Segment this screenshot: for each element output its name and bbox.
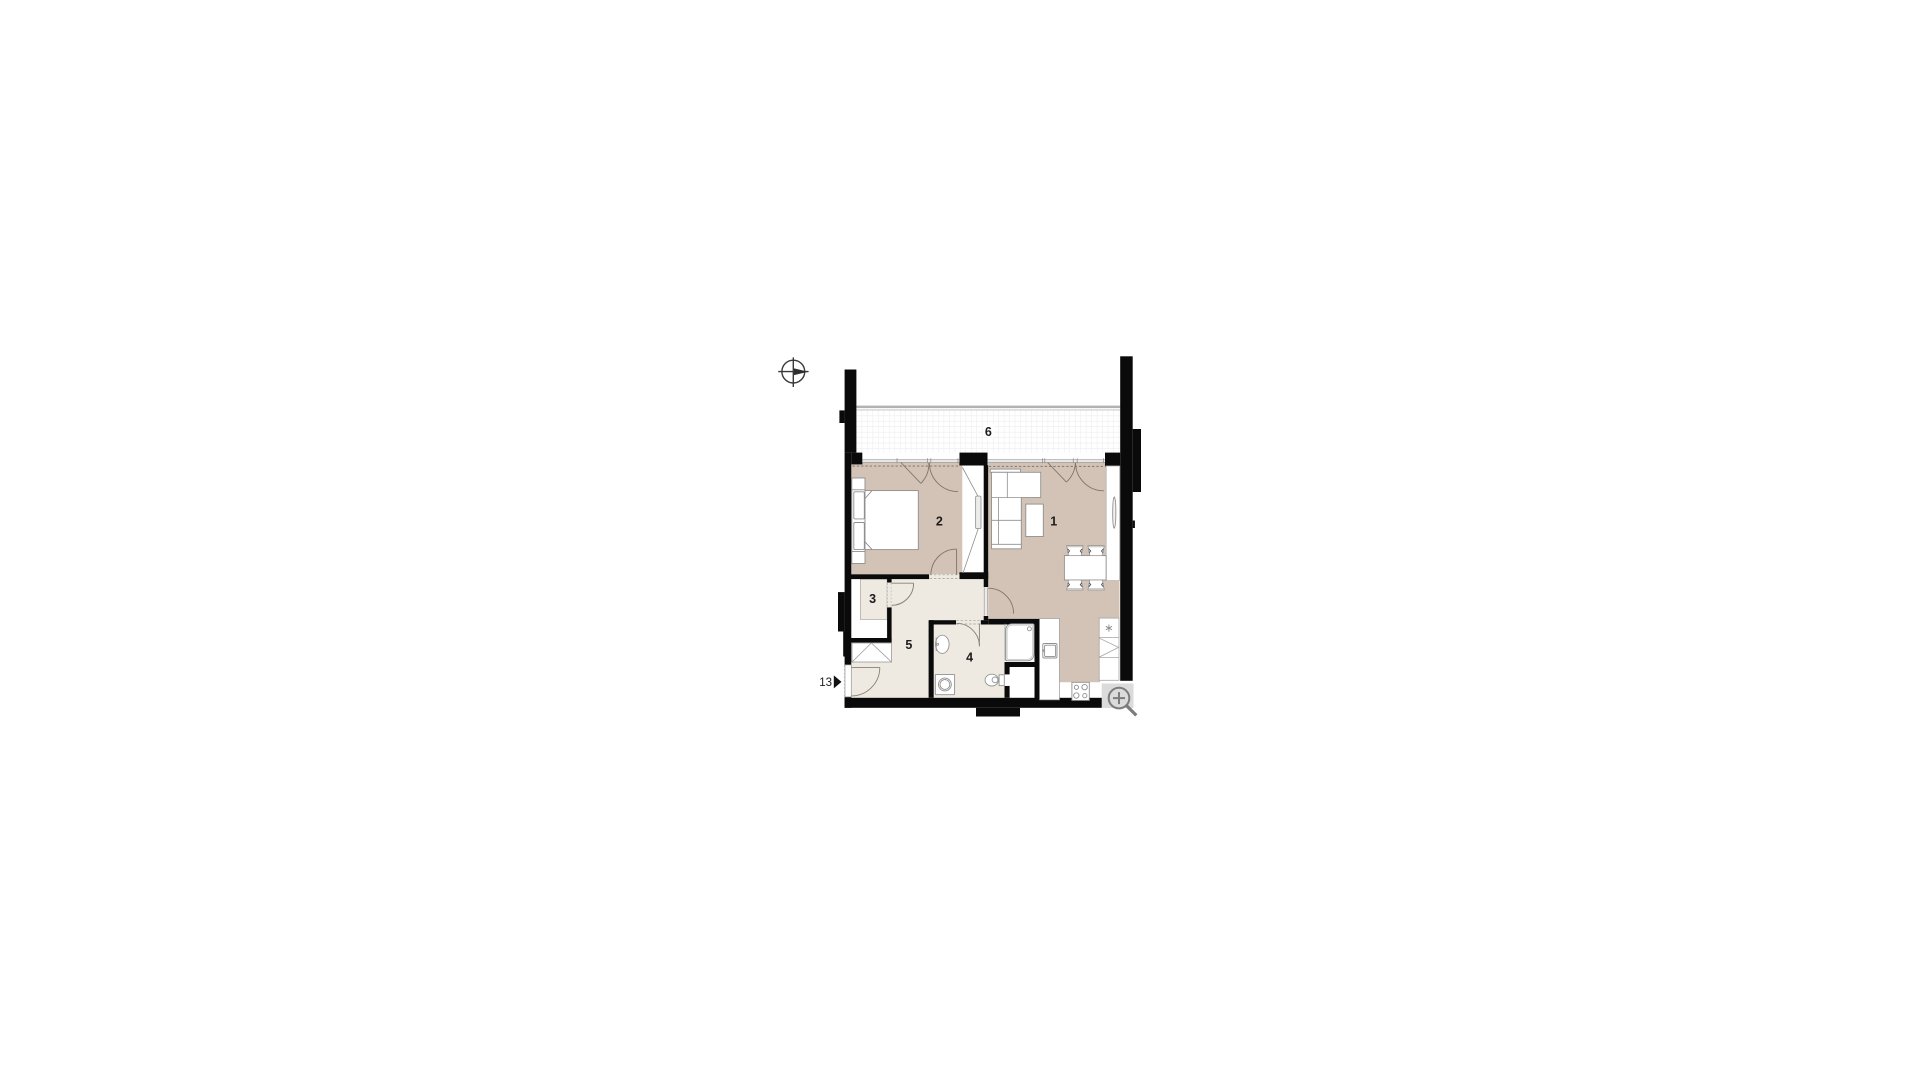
svg-text:1: 1 [1050,515,1057,529]
svg-text:6: 6 [985,425,992,439]
svg-text:13: 13 [819,677,832,689]
svg-text:4: 4 [966,651,973,665]
svg-text:2: 2 [936,514,943,528]
svg-text:3: 3 [869,592,876,606]
svg-text:5: 5 [905,638,912,652]
